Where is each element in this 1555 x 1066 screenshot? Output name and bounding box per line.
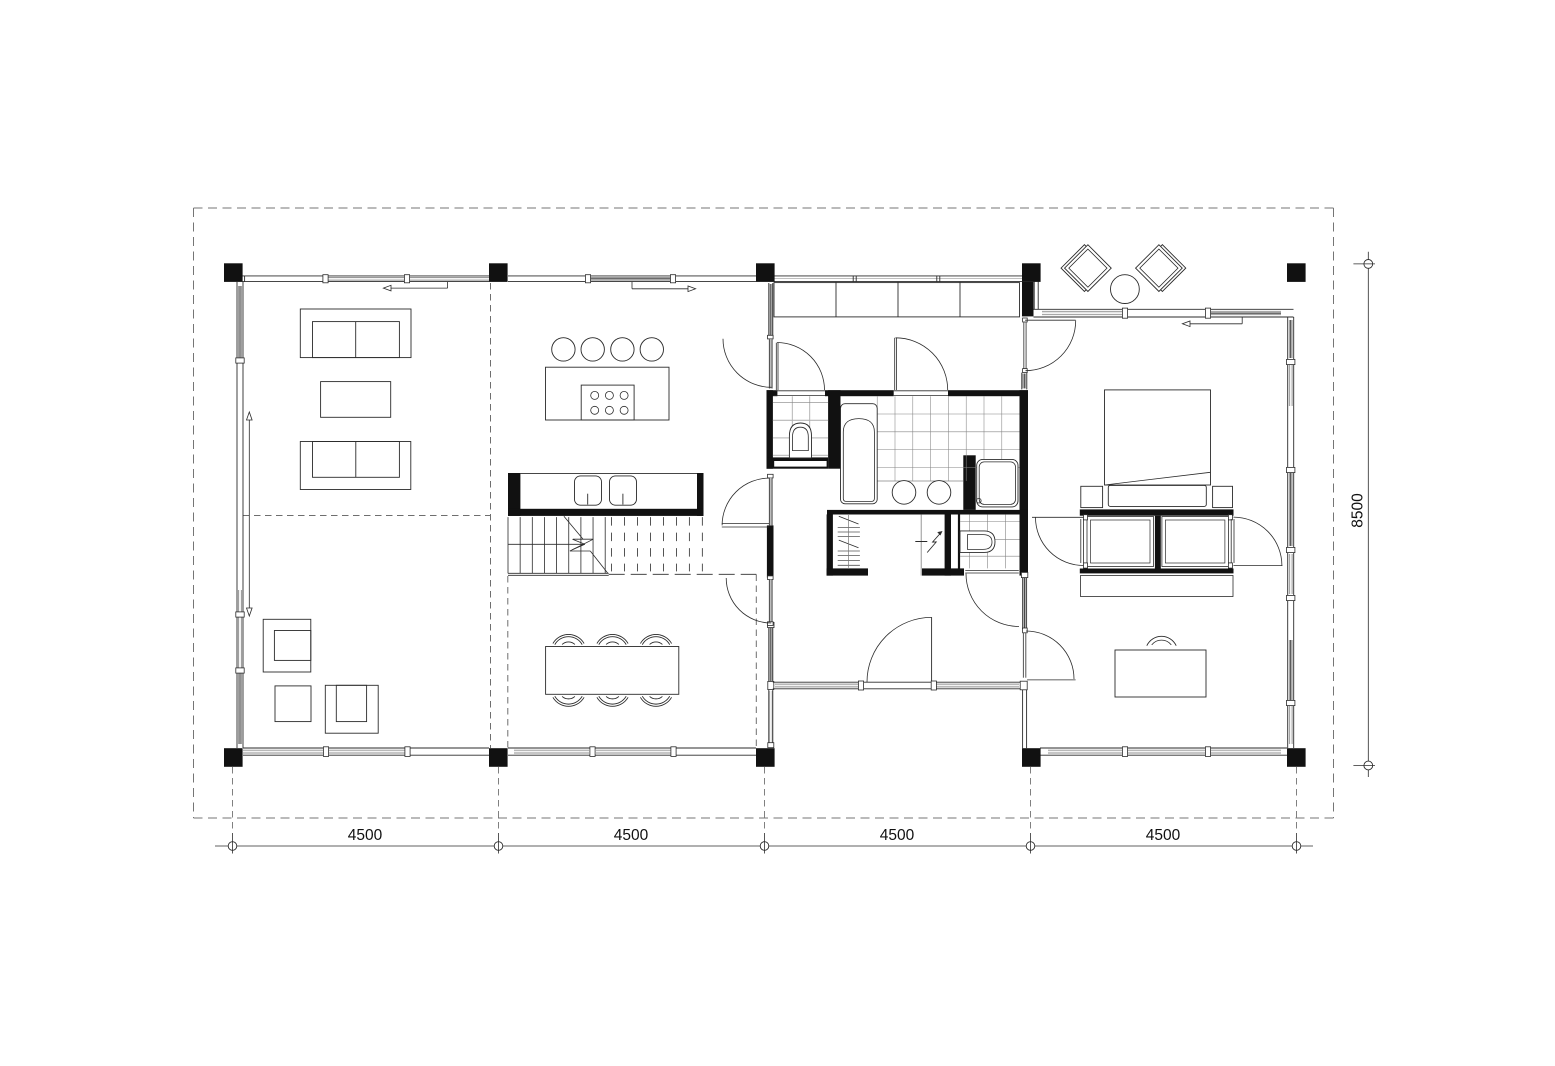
svg-text:4500: 4500: [880, 827, 915, 844]
svg-text:4500: 4500: [614, 827, 649, 844]
svg-text:8500: 8500: [1350, 493, 1367, 528]
svg-text:4500: 4500: [1146, 827, 1181, 844]
svg-text:4500: 4500: [348, 827, 383, 844]
